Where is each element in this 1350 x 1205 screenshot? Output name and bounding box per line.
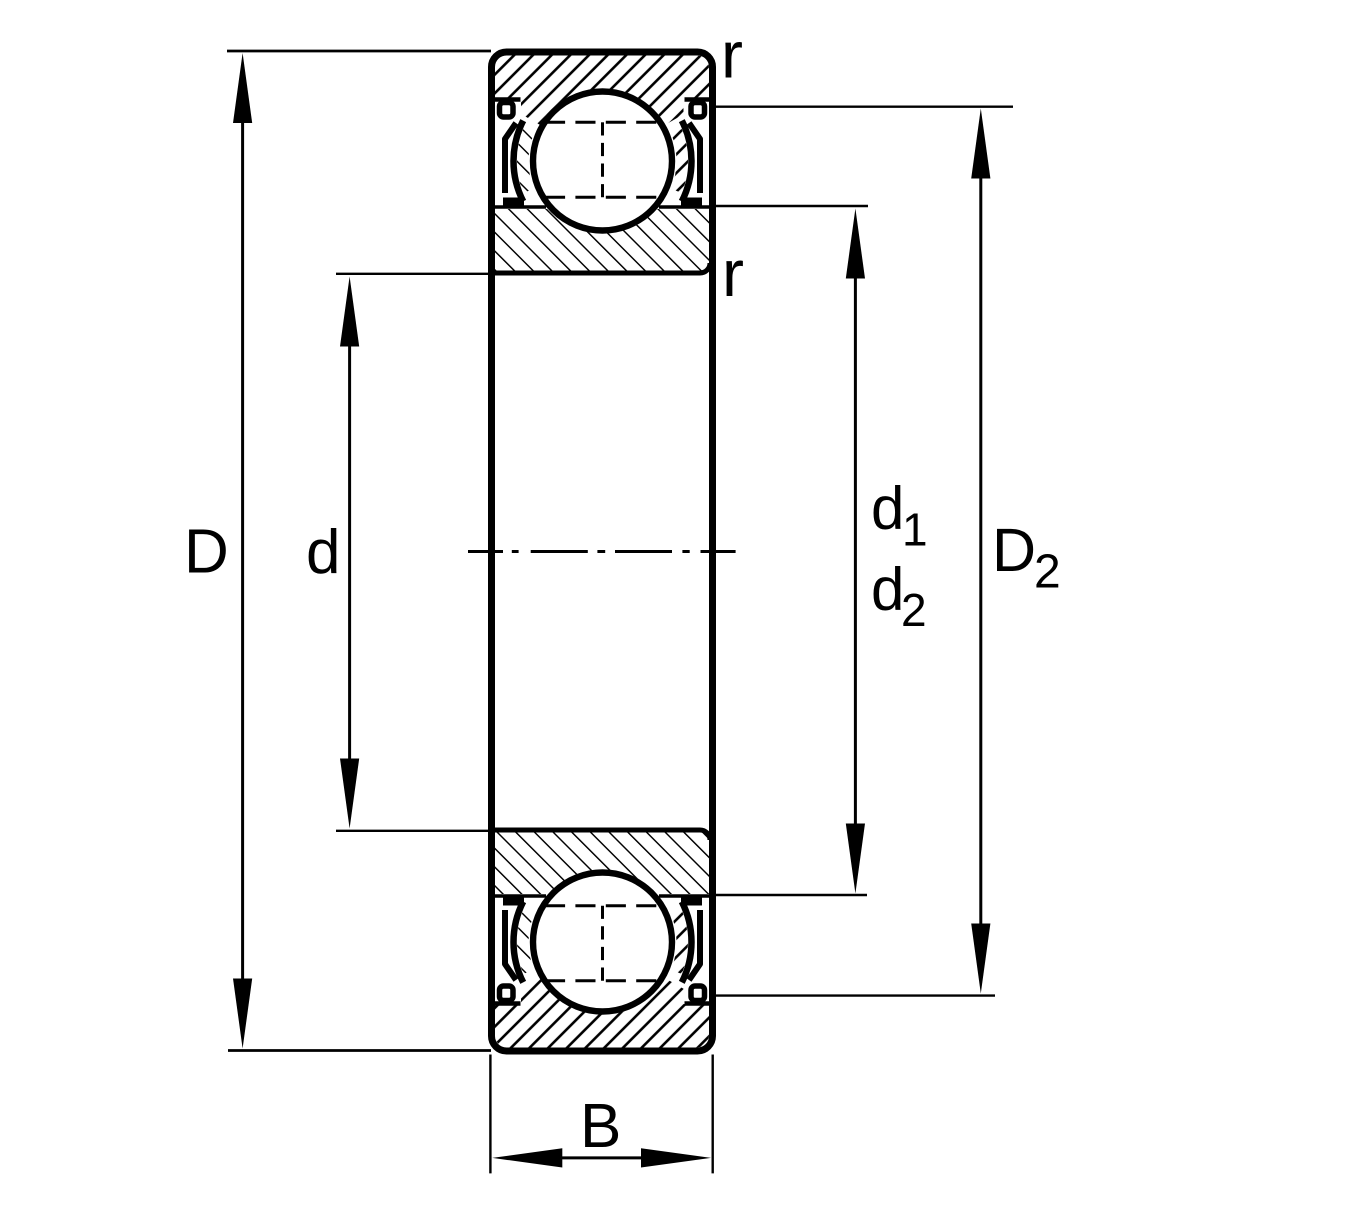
svg-text:d: d bbox=[871, 556, 904, 623]
svg-text:r: r bbox=[721, 18, 743, 92]
svg-text:2: 2 bbox=[1034, 546, 1061, 599]
svg-text:d: d bbox=[871, 475, 904, 542]
svg-text:d: d bbox=[306, 518, 340, 587]
svg-text:D: D bbox=[184, 518, 229, 587]
svg-text:B: B bbox=[580, 1092, 621, 1161]
svg-text:2: 2 bbox=[901, 584, 927, 636]
svg-text:D: D bbox=[992, 516, 1036, 584]
svg-text:r: r bbox=[722, 236, 744, 310]
svg-text:1: 1 bbox=[902, 504, 928, 556]
